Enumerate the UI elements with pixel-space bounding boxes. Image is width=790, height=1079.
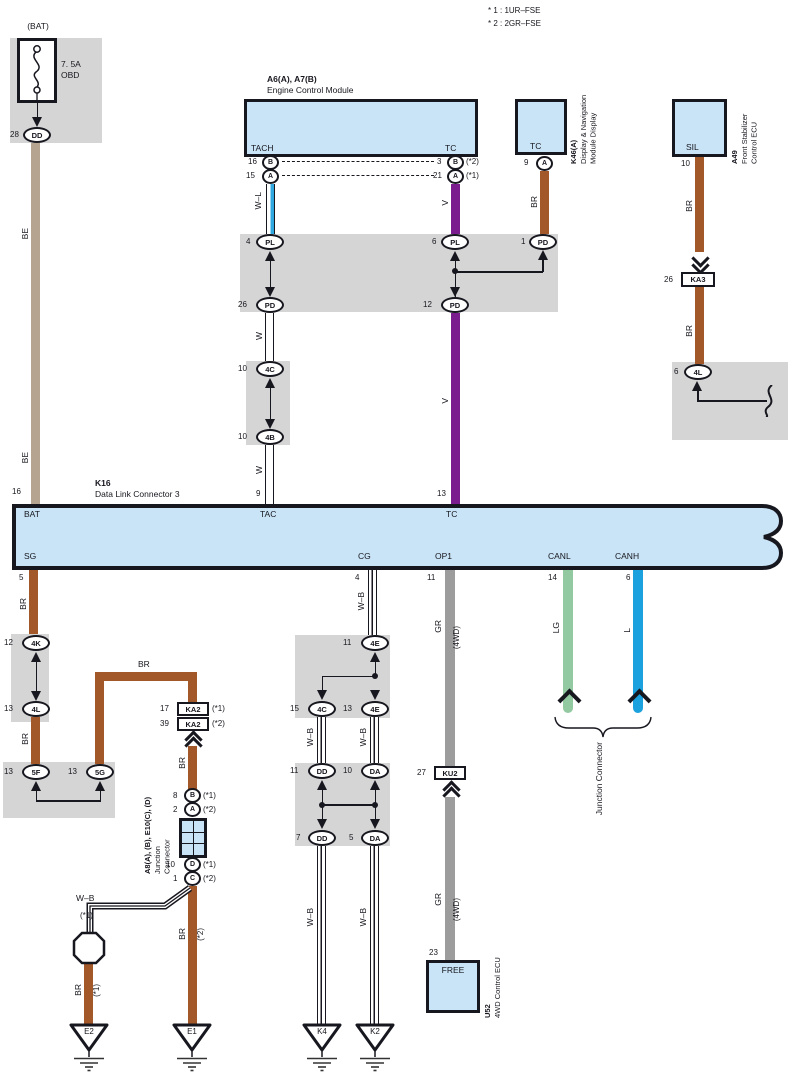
brace-icon <box>553 716 653 740</box>
wire-wb <box>317 717 326 763</box>
pin-number: 16 <box>248 157 257 166</box>
wire-label-wb: W–B <box>76 893 94 903</box>
wire-label-wb: W–B <box>305 908 315 926</box>
stab-name-2: Control ECU <box>750 62 760 164</box>
connector-oval-pd: PD <box>441 297 469 313</box>
junction-code: A8(A), (B), E10(C), (D) <box>143 778 153 874</box>
connector-oval-4l: 4L <box>684 364 712 380</box>
arrow-up-icon <box>95 781 105 791</box>
wire-br <box>31 717 40 764</box>
stab-caption: A49 Front Stabilizer Control ECU <box>730 62 759 164</box>
note-engine-2: * 2 : 2GR–FSE <box>488 19 541 28</box>
wire-gr <box>445 797 455 960</box>
wire-label-be: BE <box>20 228 30 239</box>
pin-number: 3 <box>437 157 441 166</box>
dashed-link <box>282 175 434 176</box>
pin-number: 28 <box>10 130 19 139</box>
wire-label-br: BR <box>177 757 187 769</box>
wire-v <box>451 184 460 234</box>
pin-number: 27 <box>417 768 426 777</box>
pin-number: 5 <box>19 573 23 582</box>
k16-break-edge <box>754 502 788 574</box>
connector-oval-5f: 5F <box>22 764 50 780</box>
pin-number: 13 <box>4 767 13 776</box>
link-line <box>100 791 102 801</box>
pin-number: 15 <box>290 704 299 713</box>
pin-number: 23 <box>429 948 438 957</box>
junction-dot <box>372 673 378 679</box>
k16-terminal-cg: CG <box>358 551 371 561</box>
harness-shade <box>240 234 558 312</box>
wire-label-v: V <box>440 200 450 206</box>
link-line <box>455 271 543 273</box>
4wd-name: 4WD Control ECU <box>493 928 503 1018</box>
pin-number: 7 <box>296 833 300 842</box>
wire-v <box>451 313 460 504</box>
nav-name-1: Display & Navigation <box>579 64 589 164</box>
ecm-name: Engine Control Module <box>267 85 353 95</box>
connector-oval-4e: 4E <box>361 635 389 651</box>
ecm-terminal-tach: TACH <box>251 143 274 153</box>
pin-number: 6 <box>674 367 678 376</box>
k16-box <box>12 504 756 570</box>
wire-label-gr: GR <box>433 620 443 633</box>
pin-number: 12 <box>423 300 432 309</box>
pin-number: 4 <box>246 237 250 246</box>
pin-number: 1 <box>173 874 177 883</box>
pin-number: 26 <box>238 300 247 309</box>
pin-number: 8 <box>173 791 177 800</box>
wiring-diagram: * 1 : 1UR–FSE * 2 : 2GR–FSE (BAT) 7. 5A … <box>0 0 790 1079</box>
k16-terminal-sg: SG <box>24 551 36 561</box>
link-line <box>36 662 38 692</box>
ground-label-k4: K4 <box>302 1027 342 1036</box>
connector-circle-c: C <box>184 871 201 886</box>
arrow-down-icon <box>370 690 380 700</box>
pin-number: 9 <box>524 158 528 167</box>
wire-label-w: W <box>254 332 264 340</box>
pin-number: 13 <box>68 767 77 776</box>
ecm-box <box>244 99 478 157</box>
connector-oval-pd: PD <box>256 297 284 313</box>
connector-oval-4b: 4B <box>256 429 284 445</box>
pin-number: 11 <box>290 766 298 775</box>
connector-oval-dd: DD <box>23 127 51 143</box>
arrow-up-icon <box>370 780 380 790</box>
engine-note: (*2) <box>203 874 216 883</box>
engine-note: (*2) <box>203 805 216 814</box>
wire-label-br: BR <box>20 733 30 745</box>
pin-number: 14 <box>548 573 557 582</box>
arrow-down-icon <box>265 287 275 297</box>
pin-number: 17 <box>160 704 169 713</box>
arrow-up-icon <box>265 251 275 261</box>
connector-circle-d: D <box>184 857 201 872</box>
wire-br <box>540 171 549 234</box>
stab-terminal-sil: SIL <box>686 142 699 152</box>
wire-w <box>265 313 274 361</box>
wire-label-wb: W–B <box>305 728 315 746</box>
wire-label-br: BR <box>18 598 28 610</box>
junction-dot <box>452 268 458 274</box>
arrow-up-icon <box>370 652 380 662</box>
connector-oval-pd: PD <box>529 234 557 250</box>
pin-number: 21 <box>433 171 442 180</box>
connector-rect-ka2: KA2 <box>177 702 209 716</box>
ground-label-e2: E2 <box>69 1027 109 1036</box>
connector-rect-ka2: KA2 <box>177 717 209 731</box>
k16-name: Data Link Connector 3 <box>95 489 180 499</box>
connector-oval-4k: 4K <box>22 635 50 651</box>
arrow-up-icon <box>450 251 460 261</box>
arrow-down-icon <box>32 117 42 127</box>
wire-br <box>95 681 104 764</box>
connector-oval-4c: 4C <box>256 361 284 377</box>
pin-number: 6 <box>432 237 436 246</box>
pin-number: 2 <box>173 805 177 814</box>
wire-label-br: BR <box>684 200 694 212</box>
engine-note: (*1) <box>212 704 225 713</box>
wire-label-wb: W–B <box>358 728 368 746</box>
connector-circle-a: A <box>536 156 553 171</box>
k16-terminal-tac: TAC <box>260 509 276 519</box>
k16-terminal-canh: CANH <box>615 551 639 561</box>
arrow-down-icon <box>31 691 41 701</box>
arrow-down-icon <box>450 287 460 297</box>
bat-label: (BAT) <box>16 21 60 31</box>
engine-note: (4WD) <box>452 626 461 649</box>
engine-note: (*2) <box>196 928 205 941</box>
link-line <box>542 259 544 272</box>
link-line <box>270 388 272 420</box>
wire-label-l: L <box>622 628 632 633</box>
k16-code: K16 <box>95 478 111 488</box>
wire-wb <box>368 570 377 635</box>
k16-terminal-tc: TC <box>446 509 457 519</box>
arrow-down-icon <box>317 819 327 829</box>
pin-number: 15 <box>246 171 255 180</box>
connector-circle-a: A <box>184 802 201 817</box>
engine-note: (*2) <box>212 719 225 728</box>
wire-label-wb: W–B <box>358 908 368 926</box>
fuse-rating: 7. 5A <box>61 59 81 69</box>
wire-gr <box>445 570 455 766</box>
connector-oval-dd: DD <box>308 763 336 779</box>
connector-circle-a: A <box>262 169 279 184</box>
wire-label-be: BE <box>20 452 30 463</box>
pin-number: 11 <box>343 638 351 647</box>
engine-note: (4WD) <box>452 898 461 921</box>
arrow-down-icon <box>370 819 380 829</box>
arrow-up-icon <box>31 652 41 662</box>
pin-number: 13 <box>343 704 352 713</box>
engine-note: (*1) <box>80 911 93 920</box>
pin-number: 12 <box>4 638 13 647</box>
connector-oval-da: DA <box>361 830 389 846</box>
junction-connector-box <box>179 818 207 858</box>
grid-line <box>182 843 204 844</box>
connector-oval-5g: 5G <box>86 764 114 780</box>
wire-label-br: BR <box>684 325 694 337</box>
connector-oval-pl: PL <box>441 234 469 250</box>
wire-label-wb: W–B <box>356 592 366 610</box>
arrow-down-icon <box>265 419 275 429</box>
nav-name-2: Module Display <box>589 64 599 164</box>
connector-rect-ku2: KU2 <box>434 766 466 780</box>
wire-label-v: V <box>440 398 450 404</box>
wire-label-wl: W–L <box>253 192 263 209</box>
wire-wl <box>266 184 275 234</box>
pin-number: 11 <box>427 573 435 582</box>
k16-terminal-canl: CANL <box>548 551 571 561</box>
wire-wb <box>370 846 379 1025</box>
junction-dot <box>372 802 378 808</box>
nav-caption: K46(A) Display & Navigation Module Displ… <box>569 64 598 164</box>
arrow-down-icon <box>317 690 327 700</box>
stab-code: A49 <box>730 62 740 164</box>
junction-name-1: Junction <box>153 778 163 874</box>
note-engine-1: * 1 : 1UR–FSE <box>488 6 540 15</box>
stab-box <box>672 99 727 157</box>
wire-be <box>31 143 40 504</box>
link-line <box>322 676 324 691</box>
pin-number: 16 <box>12 487 21 496</box>
ecm-terminal-tc: TC <box>445 143 456 153</box>
pin-number: 10 <box>166 860 175 869</box>
arrow-up-icon <box>265 378 275 388</box>
k16-terminal-bat: BAT <box>24 509 40 519</box>
pin-number: 9 <box>256 489 260 498</box>
wire-wb <box>370 717 379 763</box>
pin-number: 10 <box>343 766 352 775</box>
wire-br-horizontal <box>95 672 197 681</box>
link-line <box>697 400 767 402</box>
engine-note: (*1) <box>203 860 216 869</box>
ecm-code: A6(A), A7(B) <box>267 74 317 84</box>
wire-br <box>188 681 197 702</box>
wire-br <box>29 570 38 634</box>
connector-circle-a: A <box>447 169 464 184</box>
wire-label-lg: LG <box>551 622 561 633</box>
pin-number: 26 <box>664 275 673 284</box>
ground-label-k2: K2 <box>355 1027 395 1036</box>
connector-rect-ka3: KA3 <box>681 272 715 287</box>
engine-note: (*1) <box>203 791 216 800</box>
engine-note: (*1) <box>92 984 101 997</box>
noise-filter-octagon <box>72 931 106 965</box>
connector-oval-da: DA <box>361 763 389 779</box>
nav-terminal-tc: TC <box>530 141 541 151</box>
grid-line <box>193 821 194 855</box>
wire-wb <box>317 846 326 1025</box>
wire-br <box>695 287 704 364</box>
chevron-up-icon <box>557 688 581 712</box>
wire-label-br: BR <box>529 196 539 208</box>
pin-number: 10 <box>238 432 247 441</box>
arrow-up-icon <box>317 780 327 790</box>
pin-number: 13 <box>437 489 446 498</box>
fuse-name: OBD <box>61 70 79 80</box>
pin-number: 6 <box>626 573 630 582</box>
connector-circle-b: B <box>447 155 464 170</box>
wire-break-icon <box>758 385 780 417</box>
connector-oval-4c: 4C <box>308 701 336 717</box>
wire-label-gr: GR <box>433 893 443 906</box>
connector-oval-dd: DD <box>308 830 336 846</box>
connector-oval-4l: 4L <box>22 701 50 717</box>
pin-number: 39 <box>160 719 169 728</box>
can-junction-label: Junction Connector <box>594 742 604 815</box>
wire-w <box>265 445 274 504</box>
ground-label-e1: E1 <box>172 1027 212 1036</box>
wire-br <box>695 157 704 252</box>
pin-number: 1 <box>521 237 525 246</box>
4wd-caption: U52 4WD Control ECU <box>483 928 503 1018</box>
pin-number: 10 <box>681 159 690 168</box>
arrow-up-icon <box>31 781 41 791</box>
wire-label-br: BR <box>177 928 187 940</box>
fuse-symbol-icon <box>19 40 55 100</box>
arrow-up-icon <box>692 381 702 391</box>
engine-note: (*2) <box>466 157 479 166</box>
link-line <box>322 676 375 678</box>
pin-number: 13 <box>4 704 13 713</box>
4wd-code: U52 <box>483 928 493 1018</box>
link-line <box>322 804 375 806</box>
arrow-up-icon <box>538 250 548 260</box>
connector-circle-b: B <box>262 155 279 170</box>
pin-number: 10 <box>238 364 247 373</box>
junction-dot <box>319 802 325 808</box>
pin-number: 4 <box>355 573 359 582</box>
wire-label-w: W <box>254 466 264 474</box>
link-line <box>36 800 101 802</box>
k16-terminal-op1: OP1 <box>435 551 452 561</box>
pin-number: 5 <box>349 833 353 842</box>
dashed-link <box>282 161 434 162</box>
engine-note: (*1) <box>466 171 479 180</box>
4wd-terminal-free: FREE <box>426 965 480 975</box>
wire-label-br: BR <box>138 659 150 669</box>
stab-name-1: Front Stabilizer <box>740 62 750 164</box>
wire-label-br: BR <box>73 984 83 996</box>
connector-oval-4e: 4E <box>361 701 389 717</box>
link-line <box>270 261 272 288</box>
connector-oval-pl: PL <box>256 234 284 250</box>
connector-circle-b: B <box>184 788 201 803</box>
grid-line <box>182 832 204 833</box>
chevron-up-icon <box>627 688 651 712</box>
nav-code: K46(A) <box>569 64 579 164</box>
